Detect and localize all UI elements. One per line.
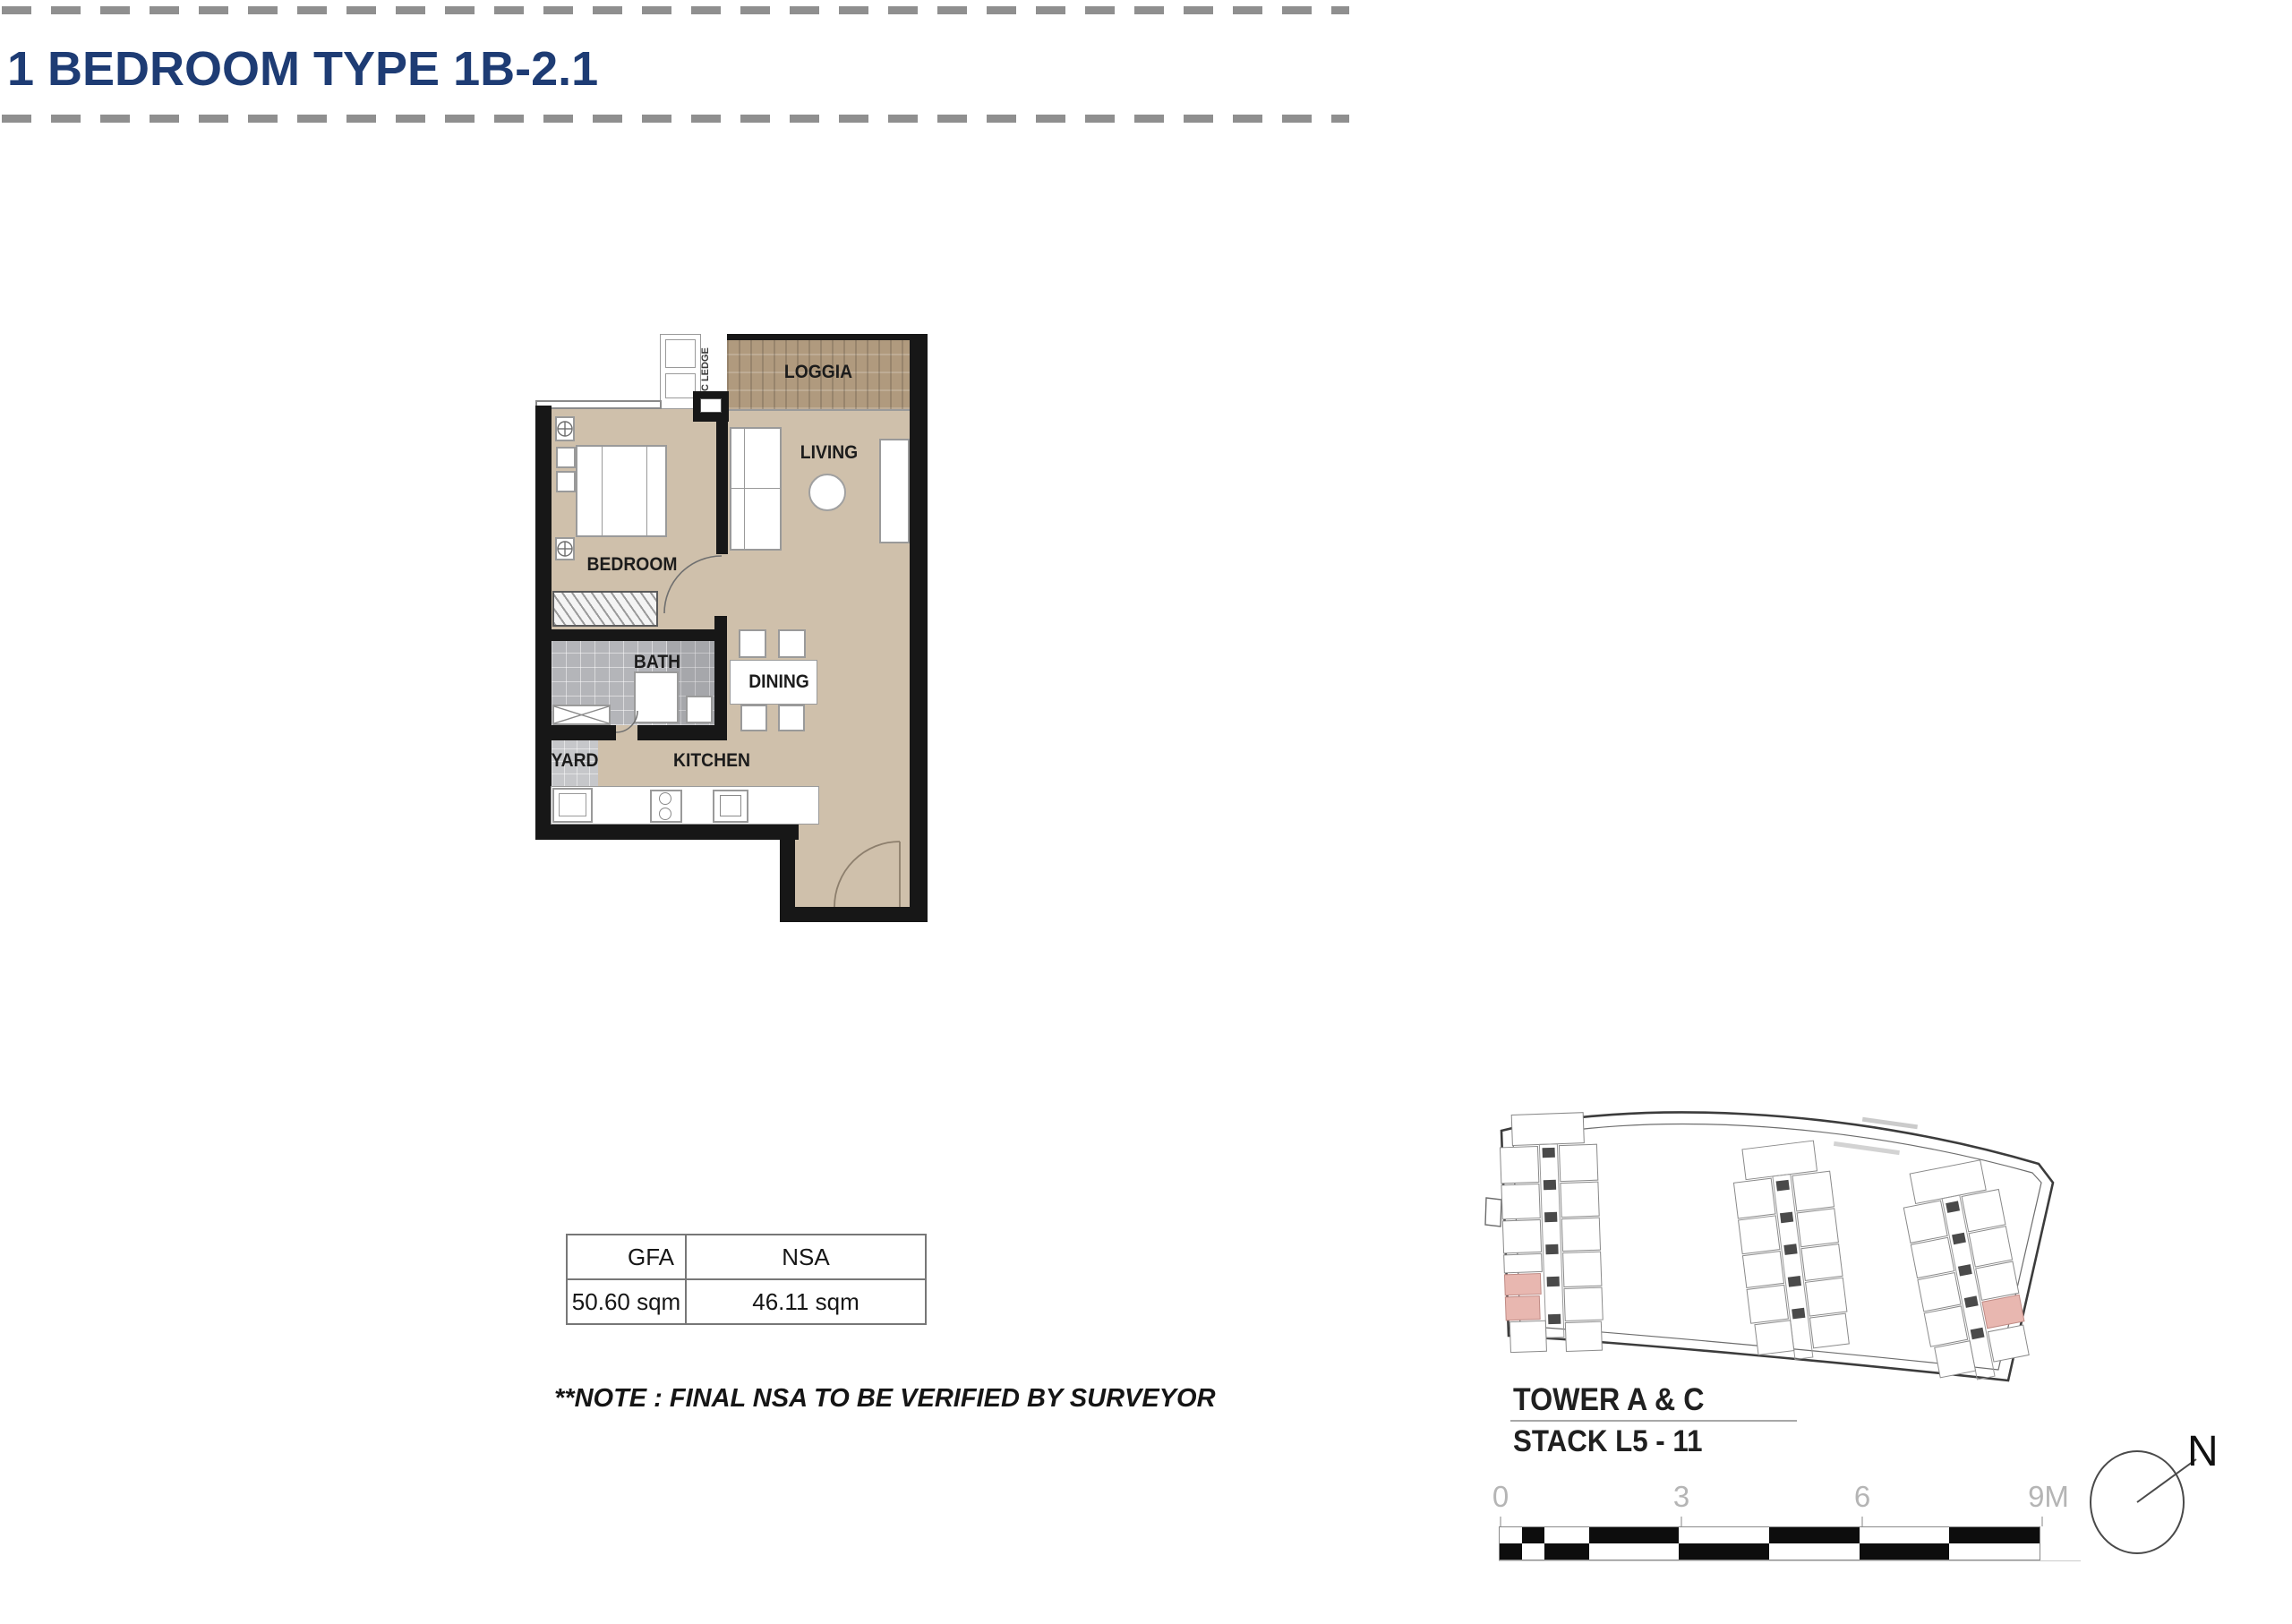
entry-door-arc xyxy=(834,842,900,907)
scale-label-6: 6 xyxy=(1854,1480,1870,1514)
scale-label-9m: 9M xyxy=(2028,1480,2069,1514)
scale-tick-3 xyxy=(1681,1517,1682,1526)
light-symbol-bottom-icon xyxy=(558,542,572,556)
north-indicator: N xyxy=(2082,1431,2234,1565)
site-key-plan xyxy=(1468,1074,2077,1423)
scale-bar: 0 3 6 9M xyxy=(1495,1480,2086,1565)
room-label-bath: BATH xyxy=(634,652,680,673)
room-label-loggia: LOGGIA xyxy=(784,362,852,383)
scale-bar-row-top xyxy=(1500,1527,2040,1543)
gfa-value-cell: 50.60 sqm xyxy=(567,1279,686,1324)
area-table-value-row: 50.60 sqm 46.11 sqm xyxy=(567,1279,926,1324)
nsa-value-cell: 46.11 sqm xyxy=(686,1279,926,1324)
light-symbol-top-icon xyxy=(558,422,572,436)
tower-cluster-a xyxy=(1499,1112,1604,1354)
floor-plan-sheet: 1 BEDROOM TYPE 1B-2.1 AC LEDGE xyxy=(0,0,2292,1624)
site-dim-mark-2 xyxy=(1834,1141,1900,1155)
room-label-yard: YARD xyxy=(552,750,599,772)
dashed-divider-top xyxy=(2,6,1349,14)
area-table: GFA NSA 50.60 sqm 46.11 sqm xyxy=(566,1234,927,1325)
scale-tick-0 xyxy=(1500,1517,1501,1526)
plan-symbols-overlay xyxy=(535,334,929,925)
nsa-header-cell: NSA xyxy=(686,1235,926,1279)
room-label-kitchen: KITCHEN xyxy=(673,750,750,772)
tower-cluster-b xyxy=(1730,1139,1852,1363)
stack-label: STACK L5 - 11 xyxy=(1513,1424,1702,1459)
bath-door-arc xyxy=(616,711,637,732)
scale-bar-row-bottom xyxy=(1500,1543,2040,1560)
note-text: **NOTE : FINAL NSA TO BE VERIFIED BY SUR… xyxy=(554,1384,1216,1414)
north-label: N xyxy=(2187,1427,2219,1476)
site-left-tab xyxy=(1485,1198,1501,1227)
scale-tick-9 xyxy=(2041,1517,2043,1526)
highlighted-unit-a2 xyxy=(1505,1296,1540,1321)
scale-label-3: 3 xyxy=(1673,1480,1689,1514)
scale-label-0: 0 xyxy=(1492,1480,1509,1514)
tower-cluster-c xyxy=(1897,1158,2033,1387)
dashed-divider-bottom xyxy=(2,115,1349,123)
tower-underline xyxy=(1510,1420,1797,1422)
area-table-header-row: GFA NSA xyxy=(567,1235,926,1279)
scale-tick-6 xyxy=(1861,1517,1863,1526)
gfa-header-cell: GFA xyxy=(567,1235,686,1279)
highlighted-unit-c1 xyxy=(1982,1295,2024,1328)
highlighted-unit-a1 xyxy=(1504,1273,1541,1295)
floor-plan: AC LEDGE xyxy=(535,334,929,925)
room-label-dining: DINING xyxy=(748,671,809,693)
room-label-bedroom: BEDROOM xyxy=(587,554,678,576)
page-title: 1 BEDROOM TYPE 1B-2.1 xyxy=(7,41,598,97)
tower-label: TOWER A & C xyxy=(1513,1382,1704,1418)
scale-bar-blocks xyxy=(1499,1526,2040,1560)
room-label-living: LIVING xyxy=(800,442,858,464)
scale-bar-baseline xyxy=(1499,1560,2081,1561)
